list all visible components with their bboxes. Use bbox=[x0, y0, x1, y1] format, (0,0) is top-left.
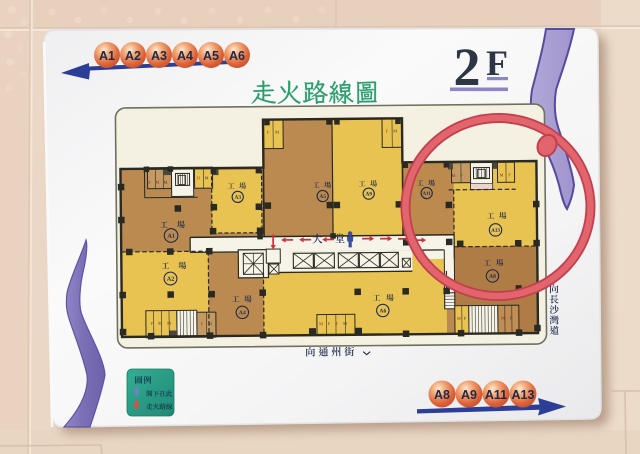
svg-text:A2: A2 bbox=[125, 49, 141, 63]
svg-text:A3: A3 bbox=[151, 49, 167, 63]
svg-text:M: M bbox=[319, 321, 323, 326]
svg-text:A8: A8 bbox=[489, 274, 496, 280]
svg-text:M: M bbox=[156, 180, 160, 185]
svg-text:M: M bbox=[164, 180, 168, 185]
svg-text:A1: A1 bbox=[167, 233, 175, 240]
svg-text:M: M bbox=[208, 321, 212, 326]
svg-text:A13: A13 bbox=[491, 228, 500, 234]
svg-text:M: M bbox=[275, 129, 279, 134]
svg-text:M: M bbox=[457, 316, 461, 321]
svg-text:A6: A6 bbox=[229, 49, 245, 63]
svg-text:M: M bbox=[452, 173, 456, 178]
svg-text:A3: A3 bbox=[234, 195, 241, 201]
svg-text:A5: A5 bbox=[319, 194, 326, 200]
svg-text:A9: A9 bbox=[365, 191, 372, 197]
svg-text:A1: A1 bbox=[99, 49, 115, 63]
svg-text:A11: A11 bbox=[485, 388, 507, 402]
svg-text:M: M bbox=[501, 315, 505, 320]
svg-text:M: M bbox=[500, 172, 504, 177]
svg-text:M: M bbox=[167, 321, 171, 326]
svg-text:A5: A5 bbox=[203, 49, 219, 63]
svg-text:A8: A8 bbox=[434, 388, 450, 402]
svg-text:D: D bbox=[197, 175, 200, 180]
svg-text:A4: A4 bbox=[239, 310, 246, 316]
svg-text:A13: A13 bbox=[512, 388, 535, 402]
svg-text:A6: A6 bbox=[379, 308, 386, 314]
svg-text:M: M bbox=[158, 321, 162, 326]
svg-text:A11: A11 bbox=[423, 192, 432, 197]
svg-text:A4: A4 bbox=[177, 49, 193, 63]
svg-text:A2: A2 bbox=[167, 276, 175, 283]
svg-text:M: M bbox=[343, 321, 347, 326]
svg-text:A9: A9 bbox=[461, 388, 477, 402]
svg-text:M: M bbox=[393, 128, 397, 133]
svg-text:M: M bbox=[205, 175, 209, 180]
